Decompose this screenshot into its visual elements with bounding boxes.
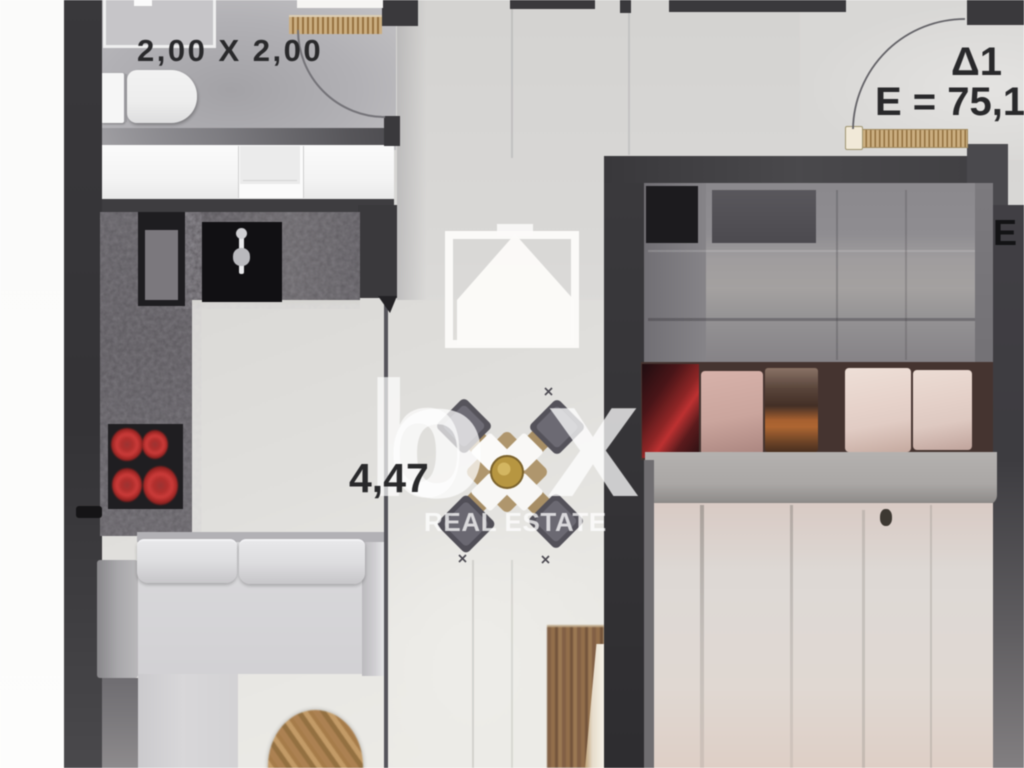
svg-text:x: x bbox=[547, 347, 639, 532]
svg-text:o: o bbox=[387, 349, 487, 532]
svg-text:REAL ESTATE: REAL ESTATE bbox=[424, 507, 607, 537]
